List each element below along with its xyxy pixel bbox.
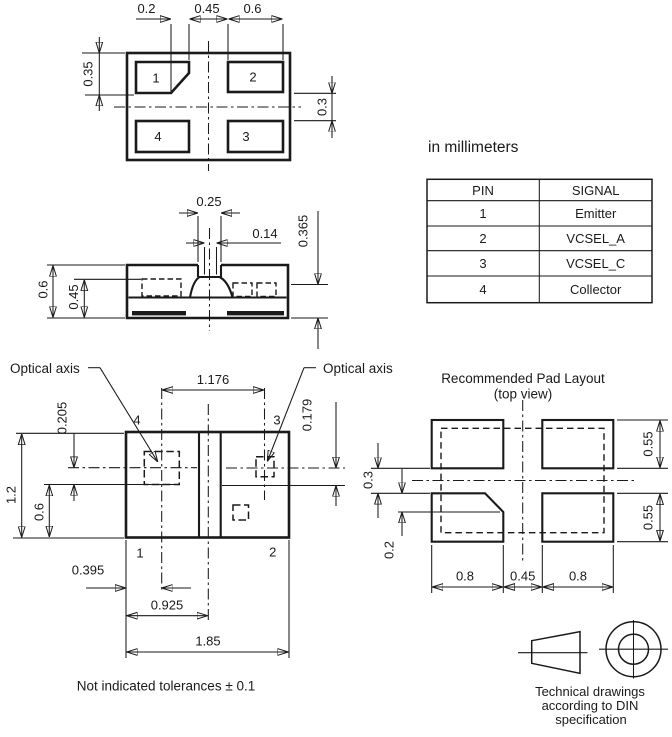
side-view-hidden-die-mid xyxy=(233,283,252,297)
top-view-pad2-label: 2 xyxy=(249,70,256,85)
din-note-line2: according to DIN xyxy=(542,698,639,713)
pin-table: PIN SIGNAL 1 Emitter 2 VCSEL_A 3 VCSEL_C… xyxy=(427,179,652,302)
datasheet-technical-drawing-page: 1 2 3 4 0.2 0.45 0.6 0.35 xyxy=(0,0,672,732)
top-view-pad4 xyxy=(136,121,189,152)
dim-pad-width-right-value: 0.8 xyxy=(569,569,587,584)
bottom-view-pad2-label: 2 xyxy=(269,545,276,560)
signal-cell: Emitter xyxy=(575,206,617,221)
pin-cell: 4 xyxy=(479,282,486,297)
die-outline-small xyxy=(233,505,249,520)
dim-pad-gap-y-value: 0.3 xyxy=(315,98,330,116)
dim-pad-width-left-value: 0.8 xyxy=(456,569,474,584)
top-view: 1 2 3 4 0.2 0.45 0.6 0.35 xyxy=(81,1,337,171)
dim-pad-height-top-value: 0.55 xyxy=(641,431,656,456)
dim-axis-to-die-right-value: 0.179 xyxy=(300,399,315,432)
din-note-line1: Technical drawings xyxy=(535,684,645,699)
dim-inner-height-value: 0.45 xyxy=(66,284,81,309)
optical-axis-callout-left: Optical axis xyxy=(10,361,158,462)
dim-aperture-width-value: 0.14 xyxy=(252,226,277,241)
bottom-view-pad1-label: 1 xyxy=(136,546,143,561)
technical-drawing: 1 2 3 4 0.2 0.45 0.6 0.35 xyxy=(0,0,672,732)
dim-die-to-bottom: 0.6 xyxy=(32,486,50,537)
layout-pad-top-right xyxy=(542,420,613,468)
dim-pad-width-left: 0.8 xyxy=(432,545,504,593)
optical-axis-left-label: Optical axis xyxy=(10,361,80,376)
optical-axis-right-label: Optical axis xyxy=(323,361,393,376)
din-projection-symbols: Technical drawings according to DIN spec… xyxy=(518,620,668,727)
dim-pad1-height-value: 0.35 xyxy=(81,61,96,86)
pin-cell: 3 xyxy=(479,256,486,271)
pad-layout-title: Recommended Pad Layout xyxy=(441,371,605,386)
dim-pad-height-bottom: 0.55 xyxy=(617,493,668,541)
pin-cell: 1 xyxy=(479,206,486,221)
dim-pad-height-bottom-value: 0.55 xyxy=(641,505,656,530)
dim-axis-to-die-right: 0.179 xyxy=(300,399,337,506)
dim-die-to-bottom-value: 0.6 xyxy=(32,503,47,521)
units-note: in millimeters xyxy=(428,139,519,156)
dim-pad-gap-x-value: 0.45 xyxy=(194,1,219,16)
dim-center-from-left-edge: 0.925 xyxy=(127,598,207,616)
dim-axis-from-left-edge-value: 0.395 xyxy=(72,563,105,578)
side-view-lens-dome xyxy=(190,277,233,298)
bottom-view-pad3-label: 3 xyxy=(273,413,280,428)
dim-pad2-width: 0.6 xyxy=(229,1,283,60)
side-view-metal-pad-right xyxy=(227,311,284,315)
top-view-pad3 xyxy=(228,121,283,152)
pin-table-header-signal: SIGNAL xyxy=(572,183,620,198)
dim-chamfer-depth: 0.2 xyxy=(382,469,501,559)
dim-row-gap-value: 0.3 xyxy=(361,471,376,489)
dim-emitter-height-value: 0.365 xyxy=(296,215,311,248)
dim-chamfer-x-value: 0.2 xyxy=(137,1,155,16)
side-view-hidden-die-left xyxy=(142,279,181,296)
dim-axis-spacing-value: 1.176 xyxy=(197,372,230,387)
side-view-metal-pad-left xyxy=(132,311,186,315)
layout-pad-top-left xyxy=(432,420,504,468)
dim-axis-to-die-left: 0.205 xyxy=(55,402,75,501)
dim-emitter-height: 0.365 xyxy=(291,211,328,349)
dim-lens-recess-width-value: 0.25 xyxy=(196,194,221,209)
pad-layout: Recommended Pad Layout (top view) 0.3 0.… xyxy=(361,371,669,593)
tolerance-note: Not indicated tolerances ± 0.1 xyxy=(77,679,256,694)
bottom-view-pad4-label: 4 xyxy=(133,413,140,428)
table-row: 2 VCSEL_A xyxy=(479,231,625,246)
table-row: 3 VCSEL_C xyxy=(479,256,625,271)
pin-cell: 2 xyxy=(479,231,486,246)
top-view-pad3-label: 3 xyxy=(242,129,249,144)
signal-cell: VCSEL_C xyxy=(566,256,625,271)
dim-axis-to-die-left-value: 0.205 xyxy=(55,402,70,435)
dim-pad-width-right: 0.8 xyxy=(543,545,613,593)
dim-body-height: 1.2 xyxy=(4,433,125,538)
dim-total-height-value: 0.6 xyxy=(36,280,51,298)
layout-pad-bottom-right xyxy=(542,493,613,541)
pad-layout-subtitle: (top view) xyxy=(494,387,553,402)
dim-axis-spacing: 1.176 xyxy=(163,372,264,390)
side-view-body-outline xyxy=(127,265,288,318)
dim-pad2-width-value: 0.6 xyxy=(243,1,261,16)
signal-cell: Collector xyxy=(570,282,622,297)
dim-body-height-value: 1.2 xyxy=(4,486,19,504)
top-view-pad1-chamfered xyxy=(136,62,189,93)
bottom-view: Optical axis Optical axis 4 3 1 2 1.176 … xyxy=(4,361,394,694)
side-view-hidden-die-right xyxy=(257,283,276,297)
dim-chamfer-depth-value: 0.2 xyxy=(382,541,397,559)
din-note-line3: specification xyxy=(555,712,627,727)
layout-pad-bottom-left-chamfered xyxy=(432,493,504,541)
dim-center-from-left-edge-value: 0.925 xyxy=(151,598,184,613)
signal-cell: VCSEL_A xyxy=(566,231,625,246)
side-view: 0.25 0.14 0.365 0.6 0.45 xyxy=(36,194,329,349)
top-view-pad1-label: 1 xyxy=(152,71,159,86)
dim-pad-height-top: 0.55 xyxy=(617,420,668,468)
dim-body-width-value: 1.85 xyxy=(195,634,220,649)
dim-pad-gap: 0.45 xyxy=(504,545,542,593)
dim-pad-gap-value: 0.45 xyxy=(510,569,535,584)
pin-table-header-pin: PIN xyxy=(472,183,494,198)
table-row: 4 Collector xyxy=(479,282,622,297)
table-row: 1 Emitter xyxy=(479,206,617,221)
top-view-pad4-label: 4 xyxy=(154,129,161,144)
dim-aperture-width: 0.14 xyxy=(186,226,281,275)
optical-axis-callout-right: Optical axis xyxy=(268,361,394,461)
